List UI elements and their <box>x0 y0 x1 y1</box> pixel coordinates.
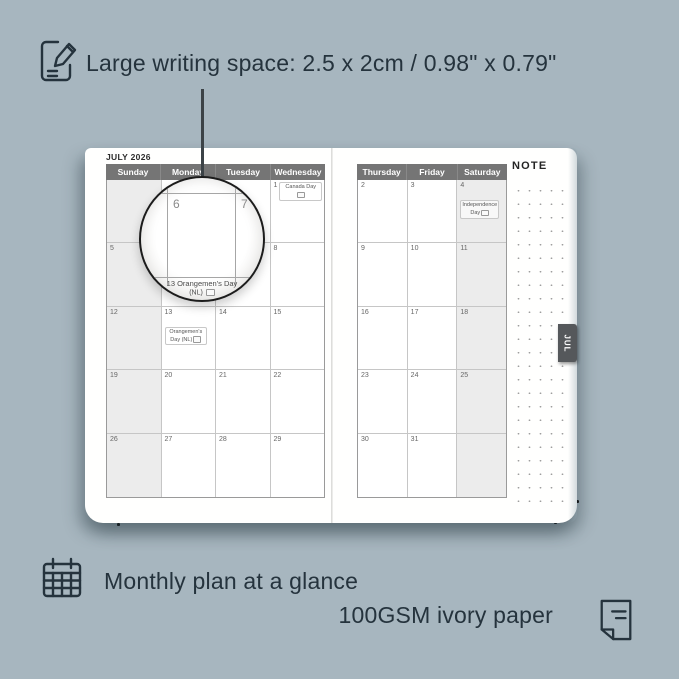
day-header: Thursday <box>357 164 407 180</box>
calendar-week-row: 1213Orangemen's Day (NL)1415 <box>107 307 324 370</box>
calendar-week-row: 161718 <box>358 307 506 370</box>
calendar-day-cell: 30 <box>358 434 408 497</box>
date-number: 2 <box>361 182 365 189</box>
magnified-holiday-subtext: (NL) <box>141 289 263 296</box>
date-number: 18 <box>460 309 468 316</box>
calendar-day-cell: 3 <box>408 180 458 243</box>
calendar-day-cell: 18 <box>457 307 506 370</box>
date-number: 13 <box>165 309 173 316</box>
magnified-date-6: 6 <box>173 197 180 211</box>
calendar-right-page: ThursdayFridaySaturday234Independence Da… <box>357 164 507 498</box>
holiday-badge-icon <box>206 289 215 296</box>
date-number: 8 <box>274 245 278 252</box>
calendar-day-cell: 22 <box>271 370 325 433</box>
calendar-week-row: 234Independence Day <box>358 180 506 243</box>
calendar-day-cell <box>457 434 506 497</box>
calendar-day-cell: 4Independence Day <box>457 180 506 243</box>
feature-large-writing-space: Large writing space: 2.5 x 2cm / 0.98" x… <box>86 50 556 77</box>
magnified-grid-line <box>235 186 236 286</box>
calendar-day-cell: 15 <box>271 307 325 370</box>
date-number: 31 <box>411 436 419 443</box>
calendar-week-row: 91011 <box>358 243 506 306</box>
calendar-day-cell: 13Orangemen's Day (NL) <box>162 307 217 370</box>
magnifier-circle: 6 7 13 Orangemen's Day (NL) <box>139 176 265 302</box>
note-label: NOTE <box>512 160 547 172</box>
calendar-day-cell: 8 <box>271 243 325 306</box>
date-number: 25 <box>460 372 468 379</box>
calendar-day-cell: 25 <box>457 370 506 433</box>
calendar-week-row: 19202122 <box>107 370 324 433</box>
calendar-day-cell: 10 <box>408 243 458 306</box>
calendar-icon <box>40 556 84 600</box>
date-number: 29 <box>274 436 282 443</box>
month-tab-label: JUL <box>563 334 572 352</box>
date-number: 14 <box>219 309 227 316</box>
calendar-day-cell: 29 <box>271 434 325 497</box>
date-number: 19 <box>110 372 118 379</box>
date-number: 23 <box>361 372 369 379</box>
calendar-day-cell: 14 <box>216 307 271 370</box>
magnified-holiday-text: 13 Orangemen's Day <box>141 279 263 288</box>
date-number: 28 <box>219 436 227 443</box>
callout-pointer-line <box>201 89 204 178</box>
note-pencil-icon <box>38 35 78 85</box>
calendar-day-cell: 28 <box>216 434 271 497</box>
calendar-grid: 234Independence Day910111617182324253031 <box>357 180 507 498</box>
calendar-day-cell: 24 <box>408 370 458 433</box>
date-number: 17 <box>411 309 419 316</box>
month-title: JULY 2026 <box>106 152 151 162</box>
magnified-grid-line <box>141 193 263 194</box>
date-number: 4 <box>460 182 464 189</box>
calendar-day-cell: 11 <box>457 243 506 306</box>
day-header: Tuesday <box>216 164 271 180</box>
calendar-day-cell: 20 <box>162 370 217 433</box>
holiday-badge-icon <box>297 192 305 199</box>
product-feature-image: Large writing space: 2.5 x 2cm / 0.98" x… <box>0 0 679 679</box>
calendar-day-cell: 1Canada Day <box>271 180 325 243</box>
day-header: Sunday <box>106 164 161 180</box>
calendar-day-cell: 31 <box>408 434 458 497</box>
date-number: 1 <box>274 182 278 189</box>
date-number: 11 <box>460 245 467 252</box>
date-number: 16 <box>361 309 369 316</box>
date-number: 15 <box>274 309 282 316</box>
day-header: Saturday <box>458 164 507 180</box>
date-number: 22 <box>274 372 282 379</box>
date-number: 30 <box>361 436 369 443</box>
calendar-week-row: 26272829 <box>107 434 324 497</box>
magnified-date-7: 7 <box>241 197 248 211</box>
calendar-day-cell: 2 <box>358 180 408 243</box>
calendar-day-cell: 19 <box>107 370 162 433</box>
paper-icon <box>596 596 636 644</box>
date-number: 26 <box>110 436 118 443</box>
date-number: 27 <box>165 436 173 443</box>
calendar-week-row: 232425 <box>358 370 506 433</box>
feature-monthly-plan: Monthly plan at a glance <box>104 568 358 595</box>
holiday-label: Orangemen's Day (NL) <box>165 327 208 346</box>
calendar-day-cell: 26 <box>107 434 162 497</box>
date-number: 24 <box>411 372 419 379</box>
holiday-badge-icon <box>193 336 201 343</box>
calendar-day-cell: 9 <box>358 243 408 306</box>
holiday-label: Canada Day <box>279 182 322 201</box>
day-header: Friday <box>407 164 457 180</box>
calendar-day-cell: 16 <box>358 307 408 370</box>
calendar-week-row: 3031 <box>358 434 506 497</box>
calendar-day-cell: 17 <box>408 307 458 370</box>
calendar-day-cell: 21 <box>216 370 271 433</box>
magnified-grid-line <box>167 186 168 286</box>
calendar-day-cell: 12 <box>107 307 162 370</box>
feature-paper: 100GSM ivory paper <box>253 602 553 629</box>
date-number: 12 <box>110 309 118 316</box>
date-number: 9 <box>361 245 365 252</box>
month-tab-jul: JUL <box>558 324 577 362</box>
holiday-label: Independence Day <box>460 200 499 219</box>
day-header: Wednesday <box>271 164 325 180</box>
page-seam <box>331 148 333 523</box>
day-header-row: ThursdayFridaySaturday <box>357 164 507 180</box>
date-number: 5 <box>110 245 114 252</box>
calendar-day-cell: 23 <box>358 370 408 433</box>
date-number: 20 <box>165 372 173 379</box>
date-number: 21 <box>219 372 227 379</box>
holiday-badge-icon <box>481 210 489 217</box>
date-number: 10 <box>411 245 419 252</box>
calendar-day-cell: 27 <box>162 434 217 497</box>
date-number: 3 <box>411 182 415 189</box>
magnified-grid-line <box>141 277 263 278</box>
